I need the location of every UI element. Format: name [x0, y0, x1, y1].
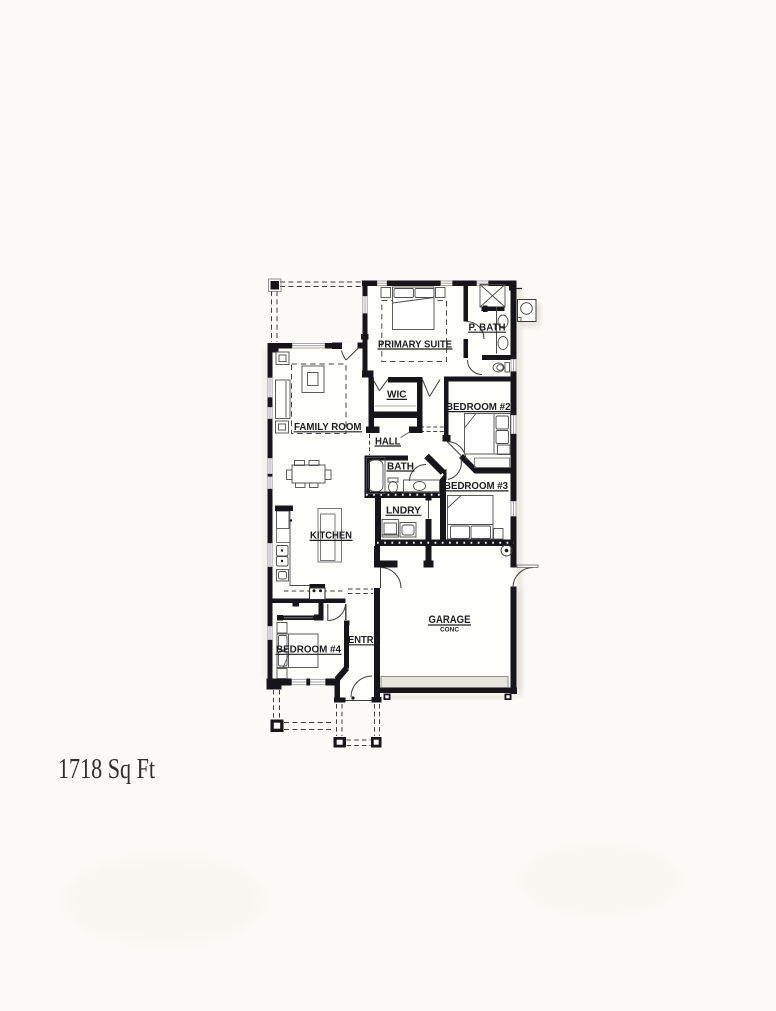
svg-text:KITCHEN: KITCHEN [310, 530, 352, 542]
svg-text:1718 Sq Ft: 1718 Sq Ft [58, 753, 155, 785]
svg-text:WIC: WIC [387, 389, 407, 401]
svg-text:GARAGE: GARAGE [429, 614, 471, 626]
svg-text:CONC: CONC [440, 626, 459, 633]
